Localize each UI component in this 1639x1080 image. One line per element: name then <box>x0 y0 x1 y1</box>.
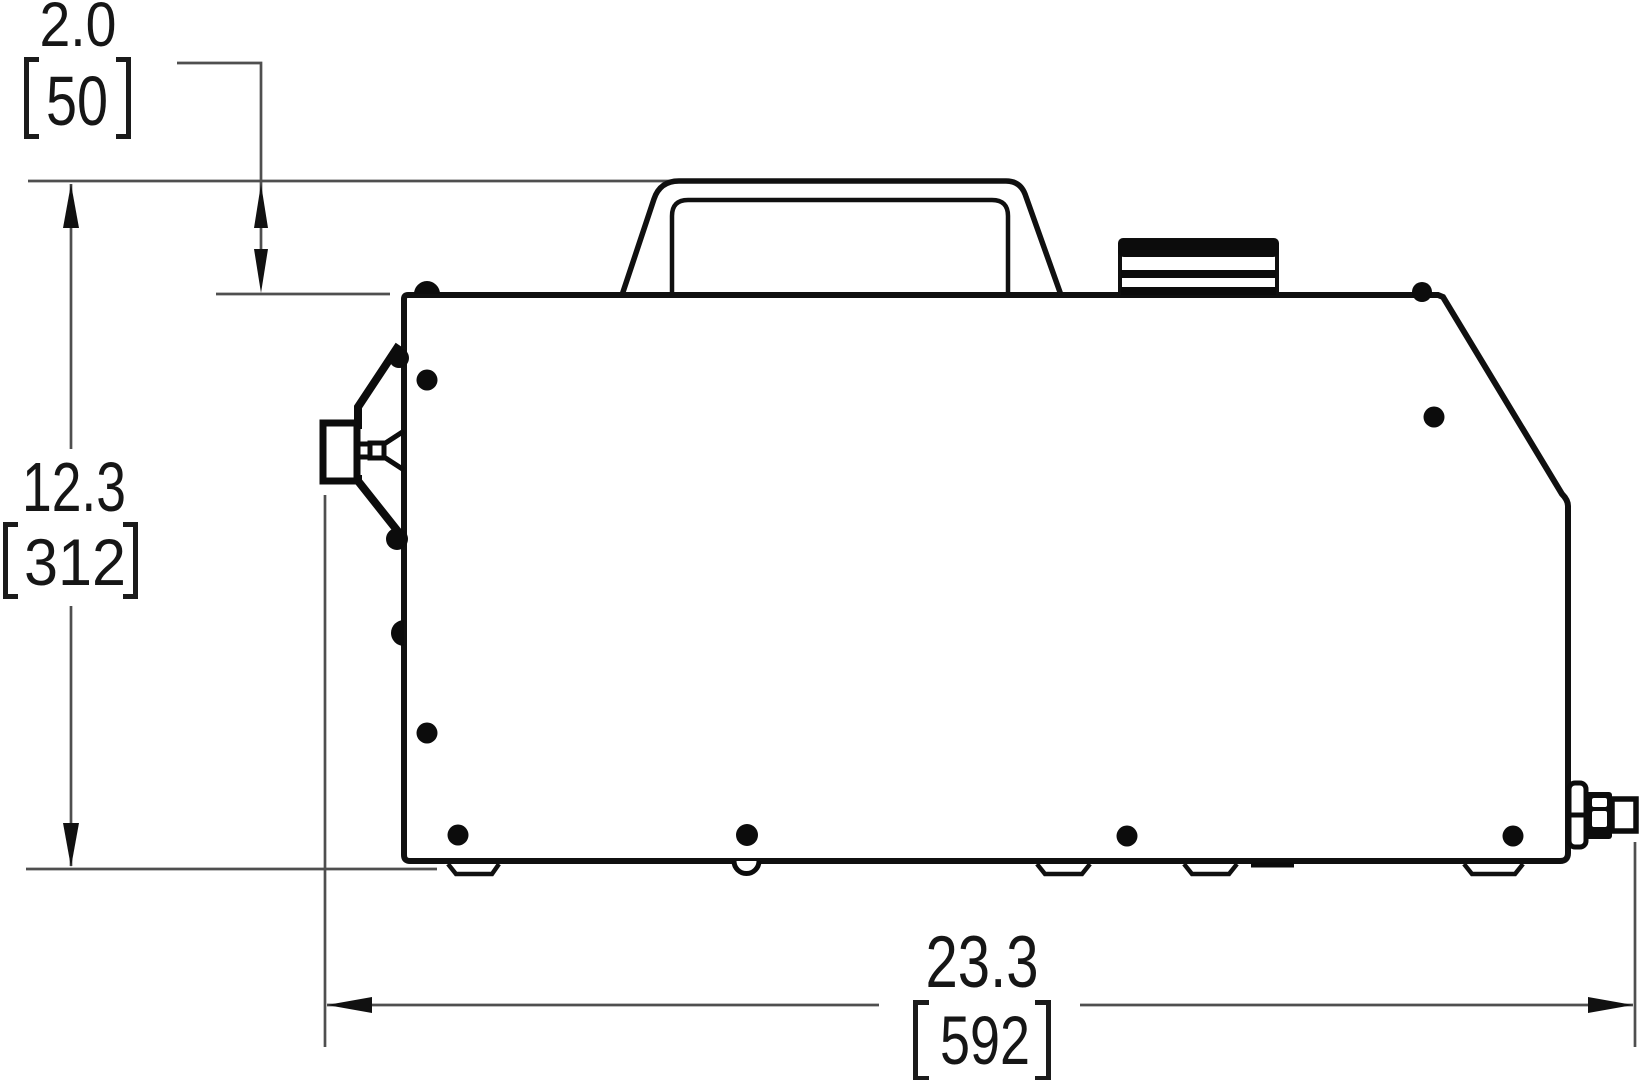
svg-text:12.3: 12.3 <box>22 448 126 526</box>
svg-text:50: 50 <box>46 62 108 140</box>
svg-text:2.0: 2.0 <box>40 0 117 60</box>
svg-text:312: 312 <box>24 525 126 599</box>
svg-text:592: 592 <box>940 1002 1030 1079</box>
svg-text:23.3: 23.3 <box>926 922 1039 1003</box>
